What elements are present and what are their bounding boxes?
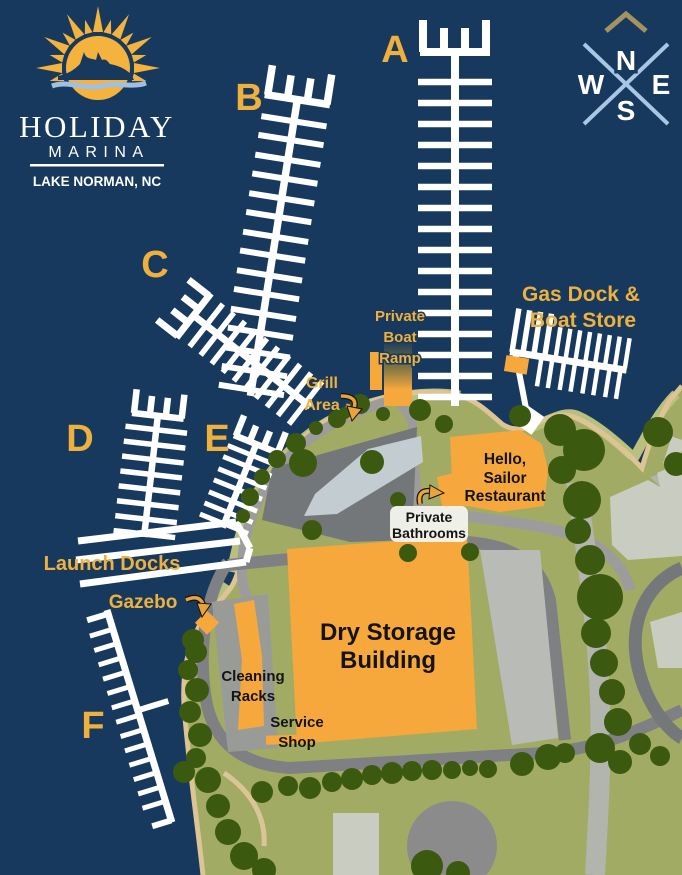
grill-area-label: Grill (306, 375, 338, 392)
cleaning-racks-label: Racks (231, 688, 275, 705)
dock-c-label: C (141, 244, 168, 286)
dock-d-label: D (66, 418, 93, 460)
restaurant-label: Hello, (484, 451, 526, 468)
gazebo-label: Gazebo (109, 592, 178, 613)
service-shop-label: Service (270, 714, 323, 731)
logo-name: HOLIDAY (19, 109, 175, 144)
gas-dock-label: Boat Store (530, 309, 636, 332)
compass-north: N (616, 45, 636, 76)
bathrooms-label: Bathrooms (392, 525, 466, 541)
dock-f-label: F (81, 705, 104, 747)
logo-type: MARINA (48, 144, 149, 161)
dry-storage-label: Dry Storage (320, 619, 456, 646)
bathrooms-label: Private (406, 509, 453, 525)
boat-ramp-label: Private (375, 308, 425, 325)
dock-e-label: E (204, 418, 229, 460)
condo-building (333, 813, 379, 875)
restaurant-label: Sailor (483, 470, 526, 487)
logo-divider (30, 164, 164, 167)
boat-ramp-label: Boat (383, 329, 416, 346)
marina-map: A B C D E F Private Boat Ramp Grill Area… (0, 0, 682, 875)
compass-west: W (578, 69, 605, 100)
compass-south: S (617, 95, 636, 126)
grill-area-label: Area (304, 397, 340, 414)
dry-storage-label: Building (340, 647, 436, 674)
launch-docks-label: Launch Docks (44, 553, 181, 575)
cleaning-racks-label: Cleaning (221, 668, 284, 685)
service-shop-label: Shop (278, 734, 316, 751)
boat-ramp-label: Ramp (379, 350, 421, 367)
logo-location: LAKE NORMAN, NC (33, 174, 161, 189)
bathrooms-callout: Private Bathrooms (390, 506, 468, 542)
dock-a-label: A (381, 29, 408, 71)
compass-east: E (652, 69, 671, 100)
gas-dock-label: Gas Dock & (522, 283, 640, 306)
restaurant-label: Restaurant (465, 488, 546, 505)
dock-b-label: B (235, 77, 262, 119)
